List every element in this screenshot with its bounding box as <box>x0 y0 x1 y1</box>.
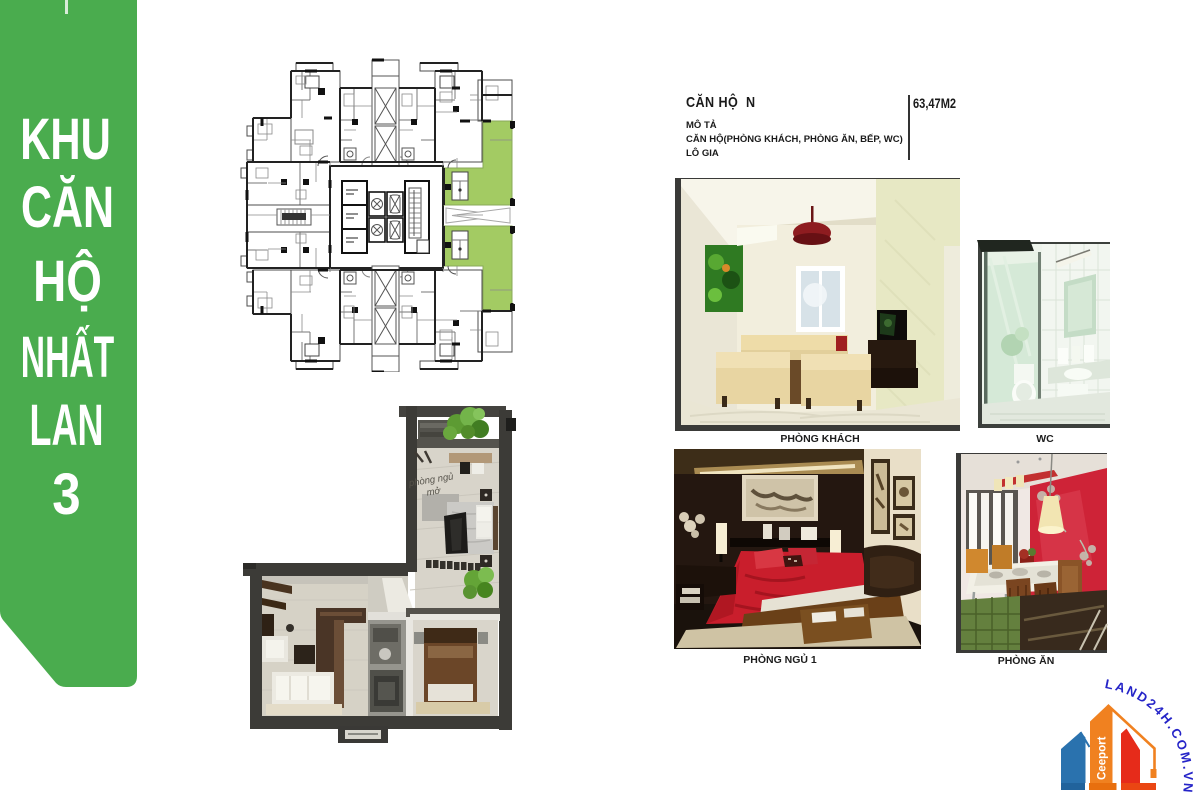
svg-text:Ceeport: Ceeport <box>1097 736 1109 780</box>
svg-text:LAND24H.COM.VN: LAND24H.COM.VN <box>1104 676 1196 795</box>
